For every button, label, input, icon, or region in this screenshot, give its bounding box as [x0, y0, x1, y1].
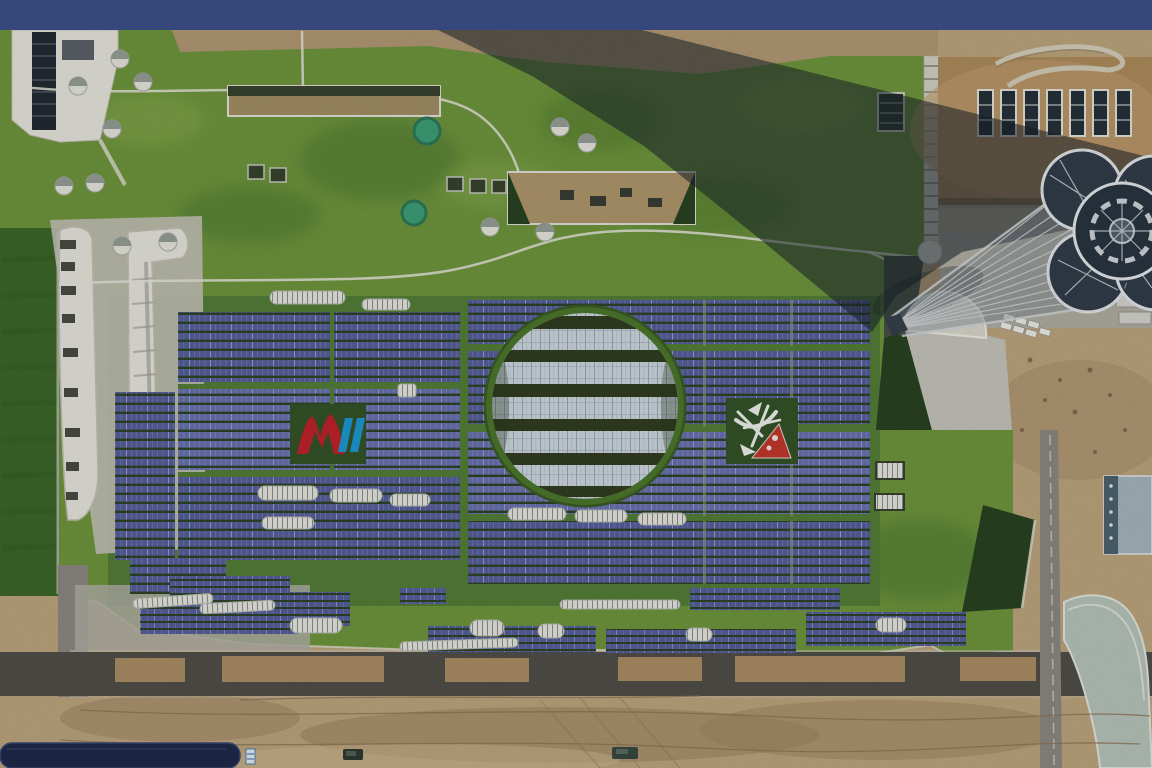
- aerial-photo-frame: [0, 0, 1152, 768]
- photo-grain: [0, 30, 1152, 768]
- aerial-photo: [0, 0, 1152, 768]
- letterbox-top: [0, 0, 1152, 30]
